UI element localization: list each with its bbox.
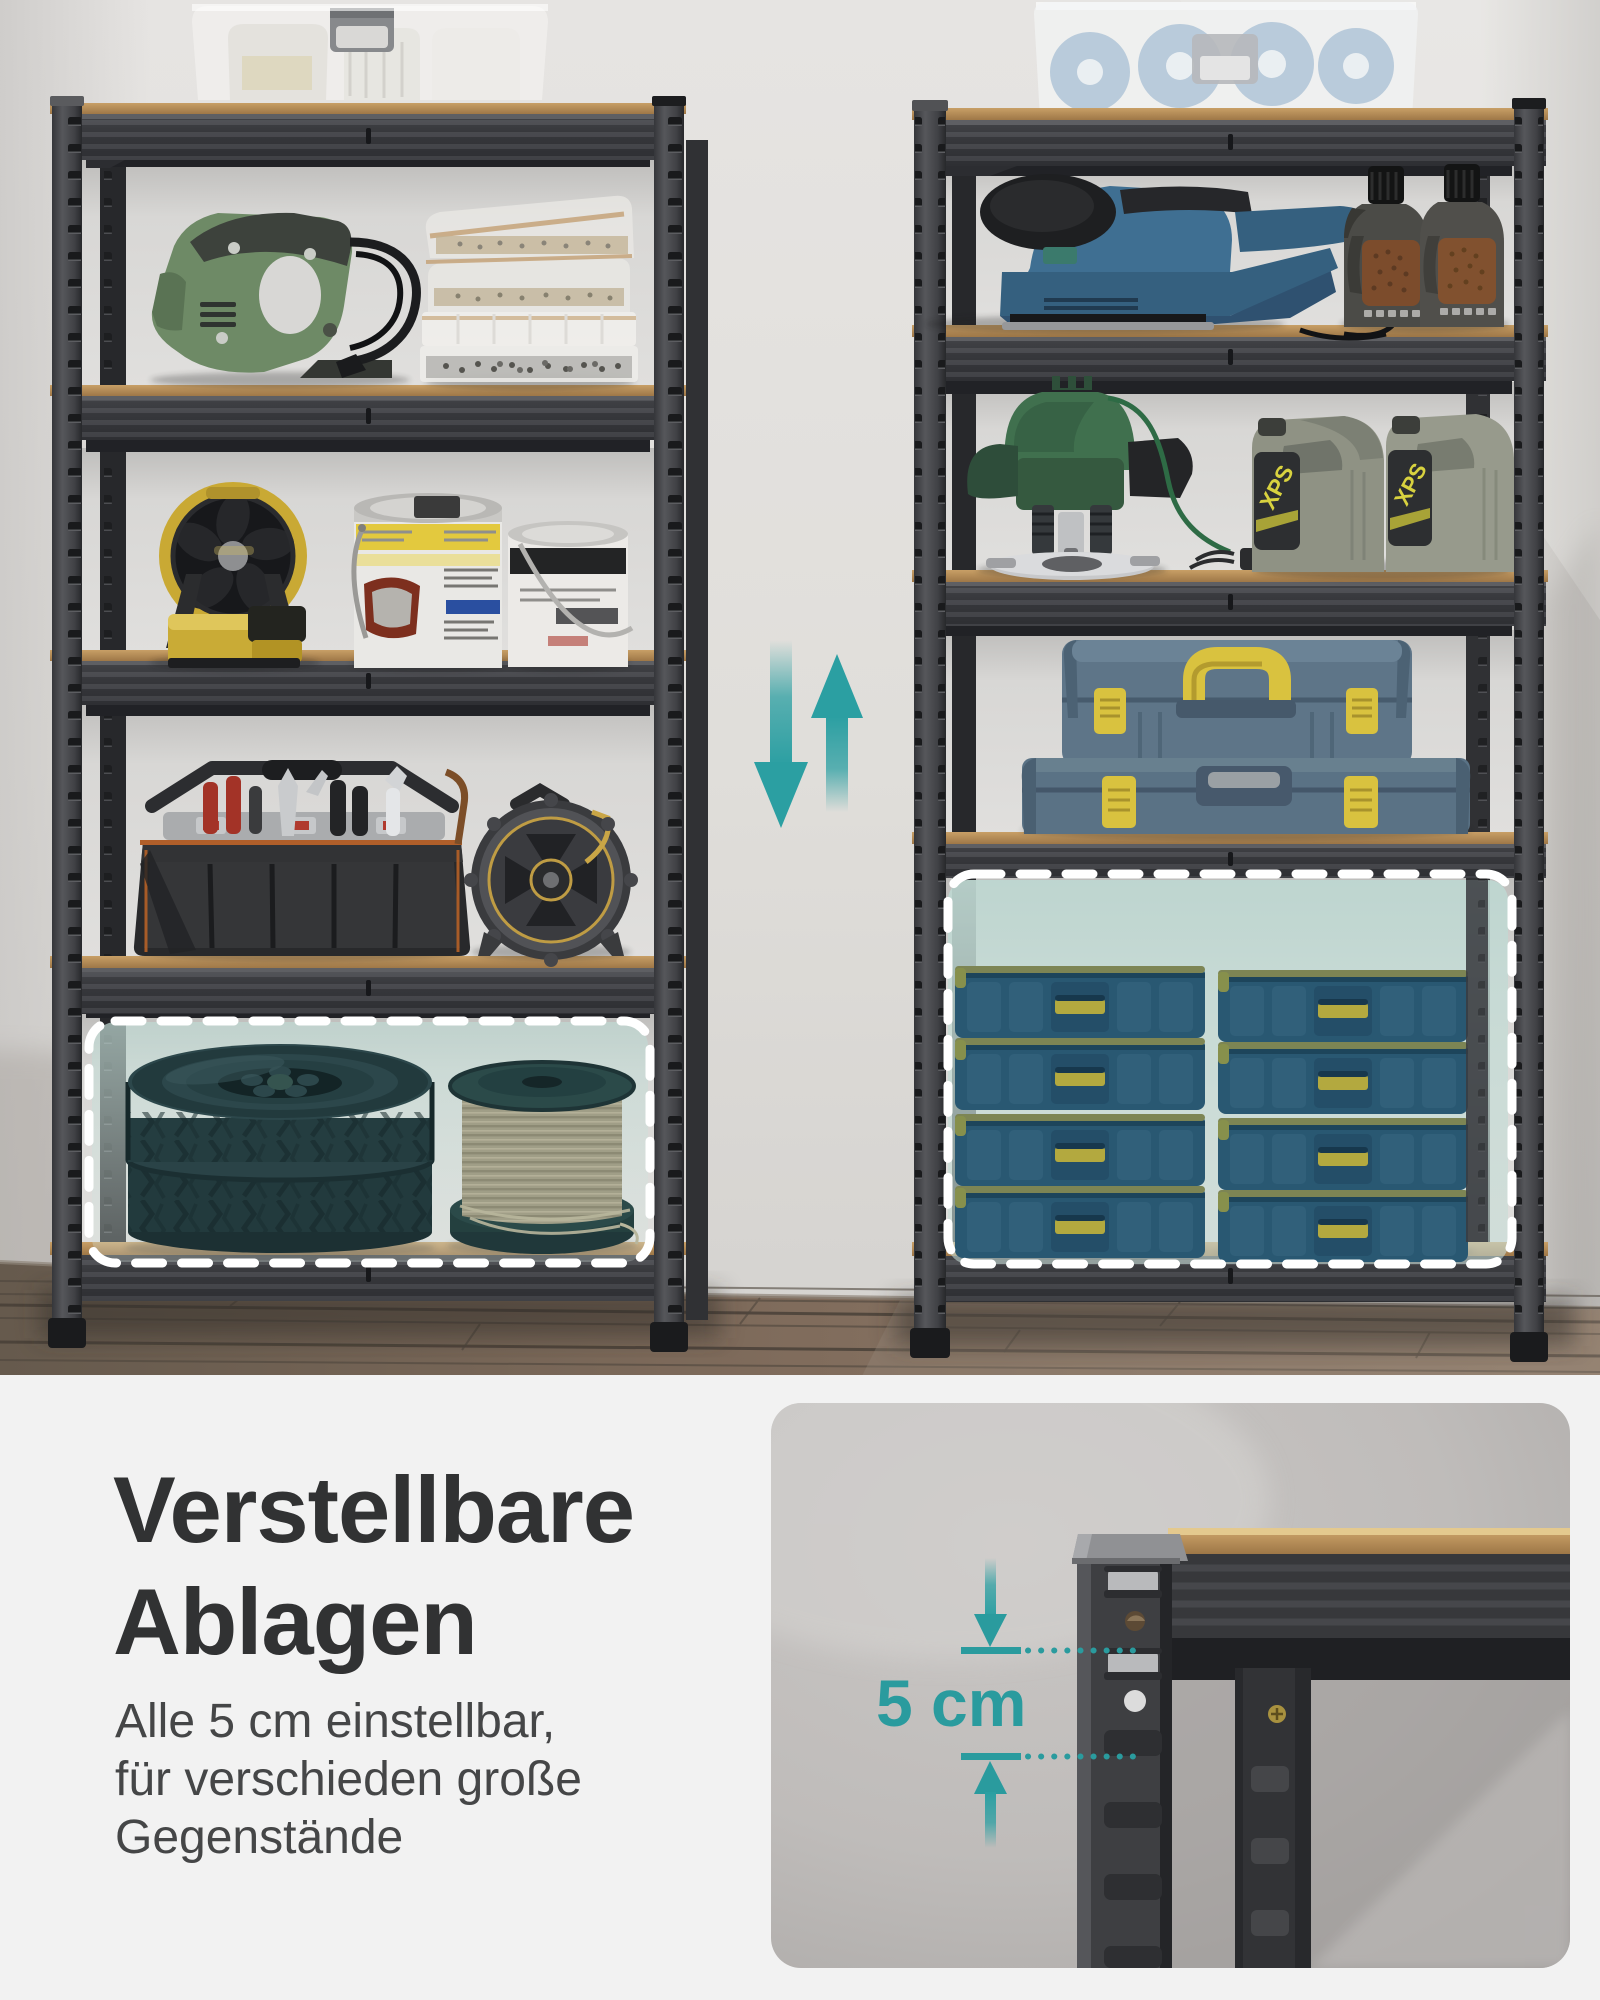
svg-text:Ablagen: Ablagen: [113, 1569, 477, 1674]
svg-text:Gegenstände: Gegenstände: [115, 1811, 403, 1864]
svg-text:für verschieden große: für verschieden große: [115, 1753, 582, 1806]
svg-text:Verstellbare: Verstellbare: [113, 1457, 634, 1562]
svg-text:Alle 5 cm einstellbar,: Alle 5 cm einstellbar,: [115, 1695, 555, 1748]
svg-text:5 cm: 5 cm: [876, 1666, 1026, 1740]
